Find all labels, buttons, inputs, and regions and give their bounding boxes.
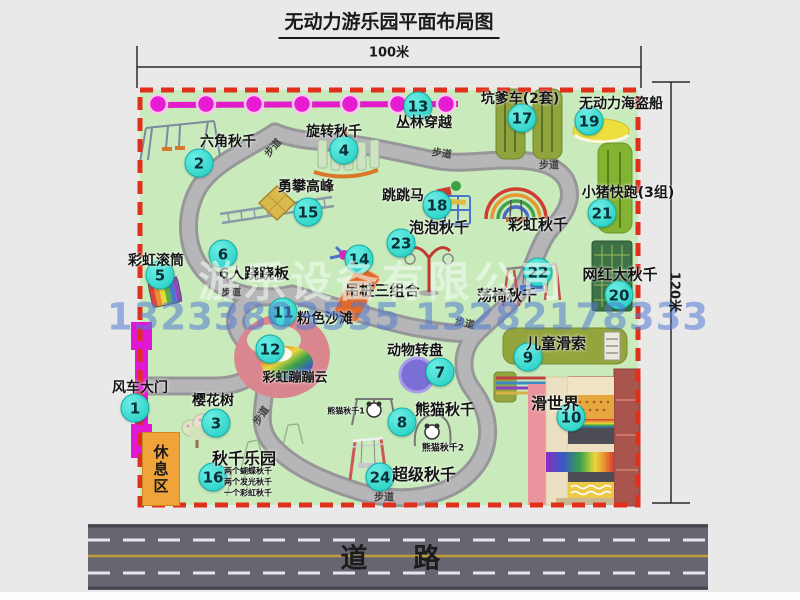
park-plan-screenshot: 无动力游乐园平面布局图 100米 120米 <box>0 0 800 600</box>
rainbow-roller-shape <box>148 276 183 308</box>
swing-seat <box>162 147 172 151</box>
rest-area-label: 休息区 <box>151 444 172 495</box>
rest-area-box: 休息区 <box>142 432 180 506</box>
swing-seat <box>175 146 185 150</box>
pirate-ship-shape <box>573 119 629 143</box>
animal-turntable-shape <box>400 358 434 392</box>
road-label: 道 路 <box>340 537 449 576</box>
net-swing-shape <box>592 241 632 311</box>
piggy-run-shape <box>598 143 632 233</box>
slide-world-shape <box>528 369 640 506</box>
width-dimension-label: 100米 <box>369 42 409 61</box>
page-title: 无动力游乐园平面布局图 <box>278 7 499 39</box>
height-dimension-label: 120米 <box>667 272 686 312</box>
